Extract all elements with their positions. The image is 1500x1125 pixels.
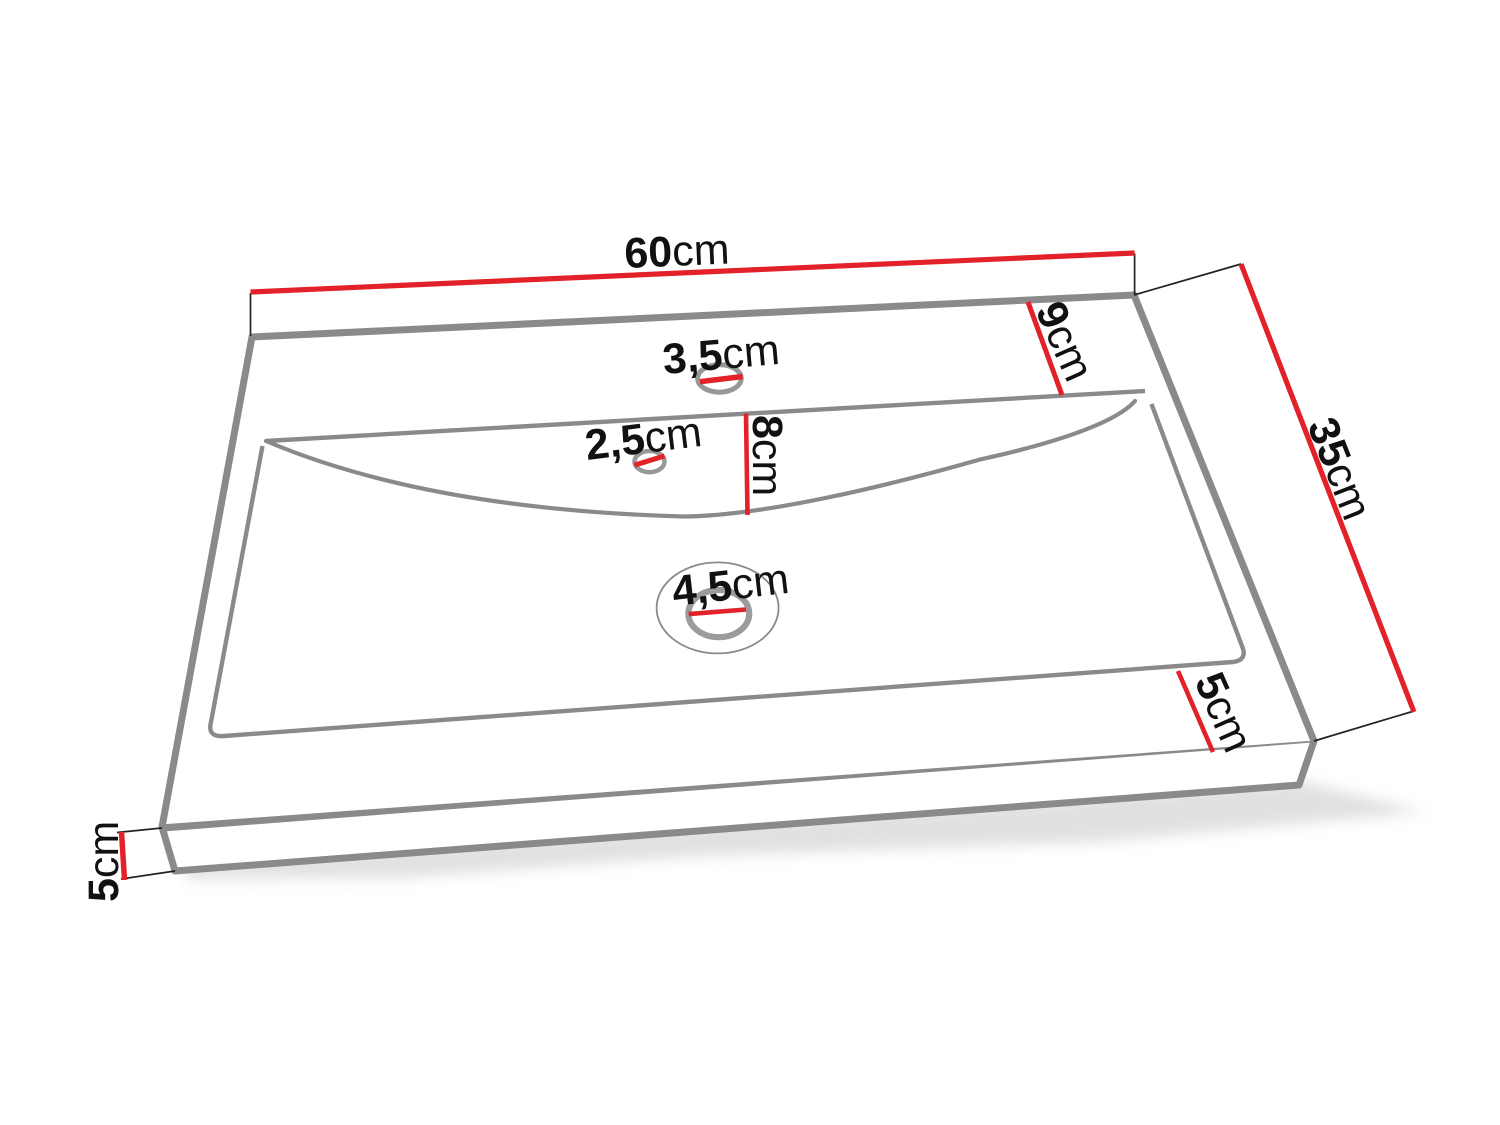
svg-text:5cm: 5cm — [80, 821, 128, 902]
svg-text:8cm: 8cm — [743, 415, 791, 496]
svg-text:35cm: 35cm — [1298, 411, 1381, 526]
svg-text:60cm: 60cm — [623, 225, 730, 278]
svg-text:3,5cm: 3,5cm — [661, 326, 782, 384]
